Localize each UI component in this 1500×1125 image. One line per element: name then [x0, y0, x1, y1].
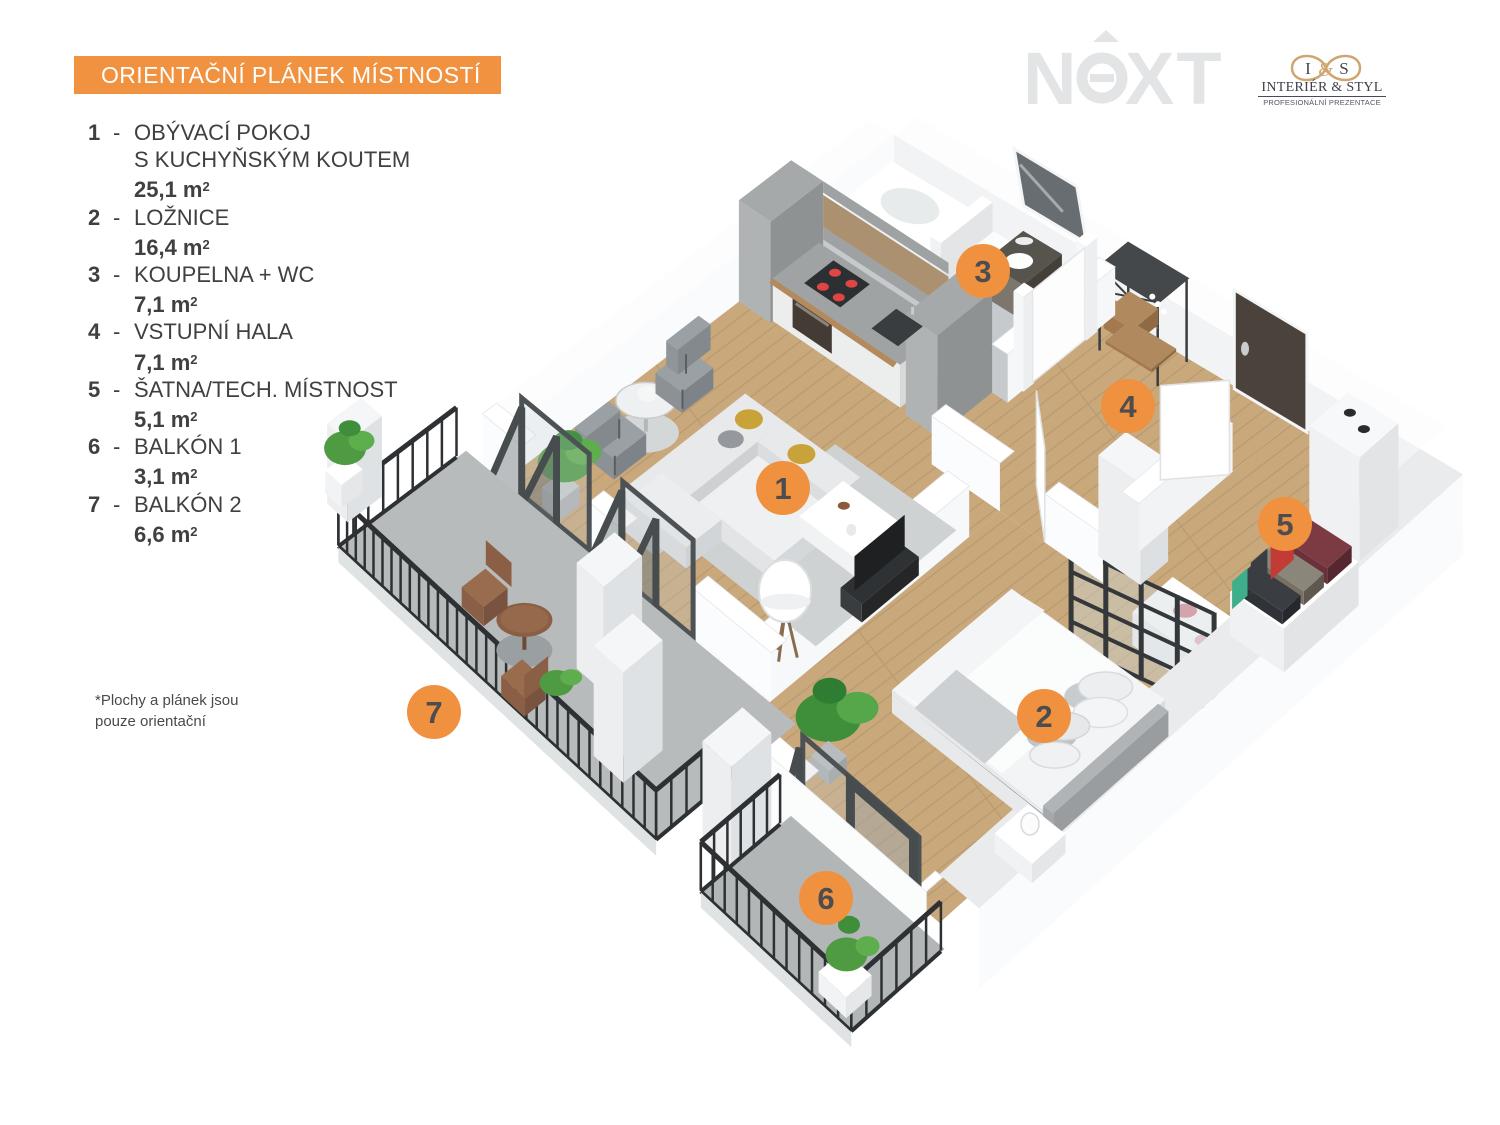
svg-text:5: 5 — [1276, 507, 1293, 542]
svg-text:2: 2 — [1035, 699, 1052, 734]
svg-text:4: 4 — [1119, 389, 1137, 424]
svg-text:6: 6 — [817, 881, 834, 916]
svg-text:7: 7 — [425, 695, 442, 730]
svg-text:3: 3 — [974, 254, 991, 289]
svg-text:1: 1 — [774, 471, 791, 506]
